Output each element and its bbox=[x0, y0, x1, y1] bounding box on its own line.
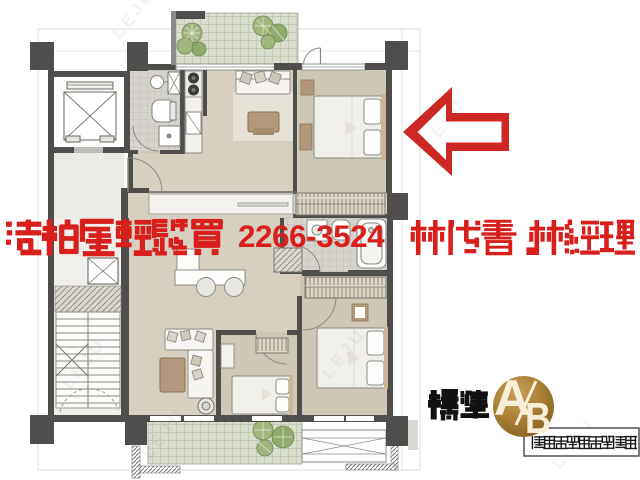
svg-text:LEJU: LEJU bbox=[108, 0, 160, 42]
svg-text:B: B bbox=[525, 394, 551, 443]
svg-text:2266-3524: 2266-3524 bbox=[238, 218, 385, 254]
